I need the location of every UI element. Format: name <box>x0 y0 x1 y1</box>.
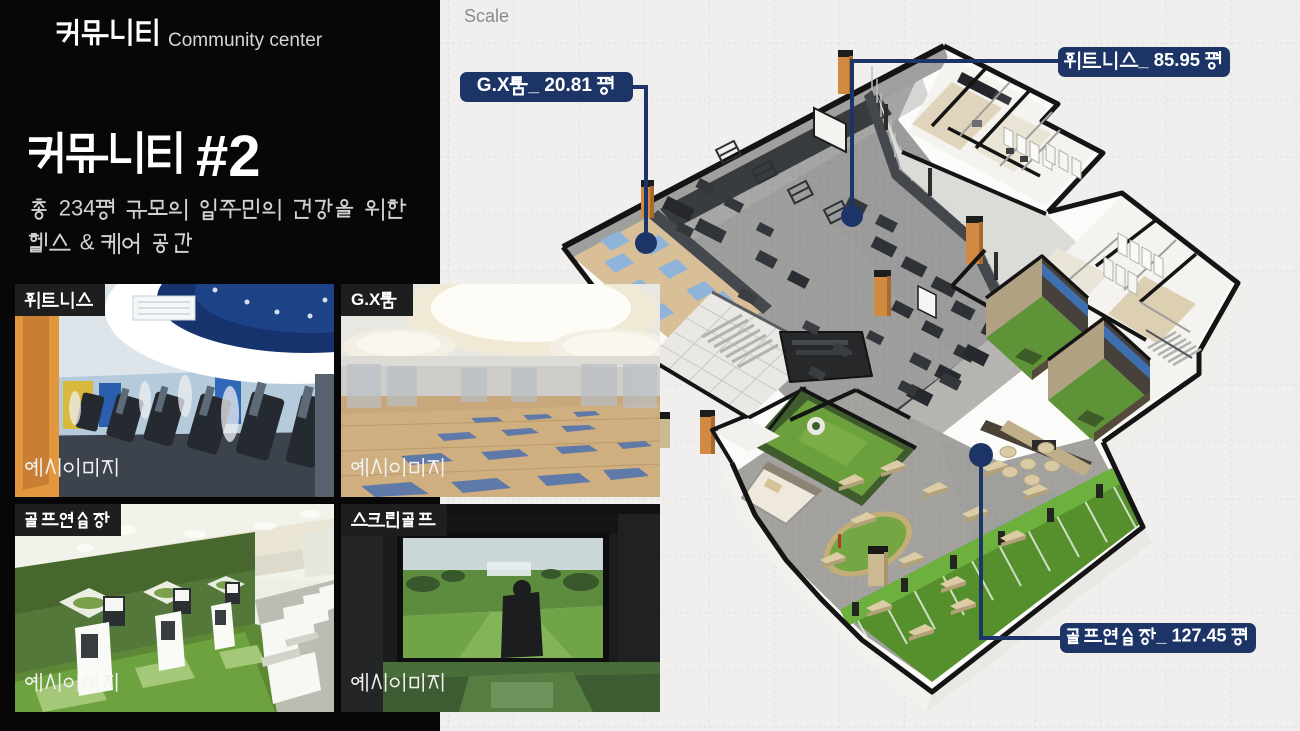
svg-text:_ 20.81: _ 20.81 <box>528 75 593 96</box>
svg-text:&: & <box>80 230 95 255</box>
svg-text:_ 85.95: _ 85.95 <box>1137 49 1200 70</box>
svg-text:Community center: Community center <box>168 30 323 51</box>
svg-text:#2: #2 <box>196 124 261 189</box>
svg-text:234: 234 <box>59 196 96 221</box>
svg-text:_ 127.45: _ 127.45 <box>1156 626 1227 646</box>
svg-text:Scale: Scale <box>464 6 509 26</box>
svg-text:G.X: G.X <box>477 75 510 96</box>
svg-text:G.X: G.X <box>351 290 381 309</box>
